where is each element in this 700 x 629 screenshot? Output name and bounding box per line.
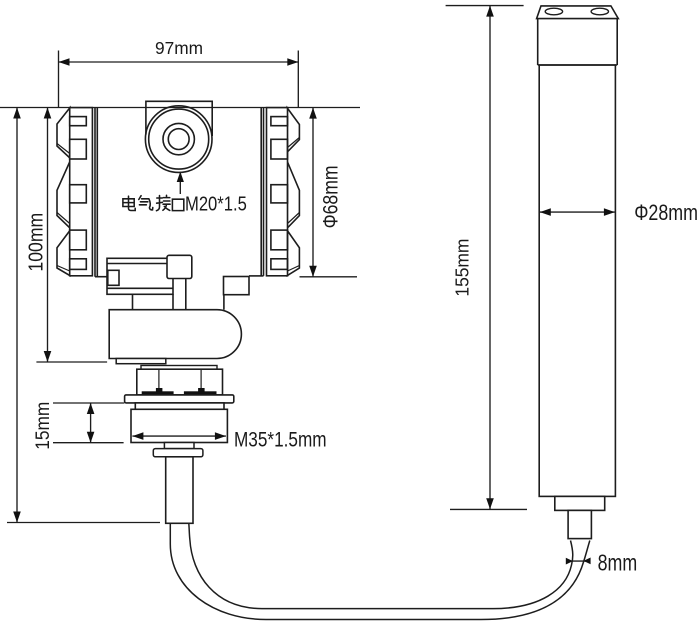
svg-text:M20*1.5: M20*1.5 <box>185 193 247 216</box>
svg-text:15mm: 15mm <box>32 402 54 450</box>
svg-text:97mm: 97mm <box>155 38 203 58</box>
svg-text:Φ68mm: Φ68mm <box>320 166 343 229</box>
svg-text:100mm: 100mm <box>26 213 48 272</box>
svg-text:155mm: 155mm <box>452 239 473 297</box>
svg-text:M35*1.5mm: M35*1.5mm <box>234 428 327 451</box>
svg-text:Φ28mm: Φ28mm <box>634 200 698 225</box>
svg-text:8mm: 8mm <box>598 550 638 576</box>
